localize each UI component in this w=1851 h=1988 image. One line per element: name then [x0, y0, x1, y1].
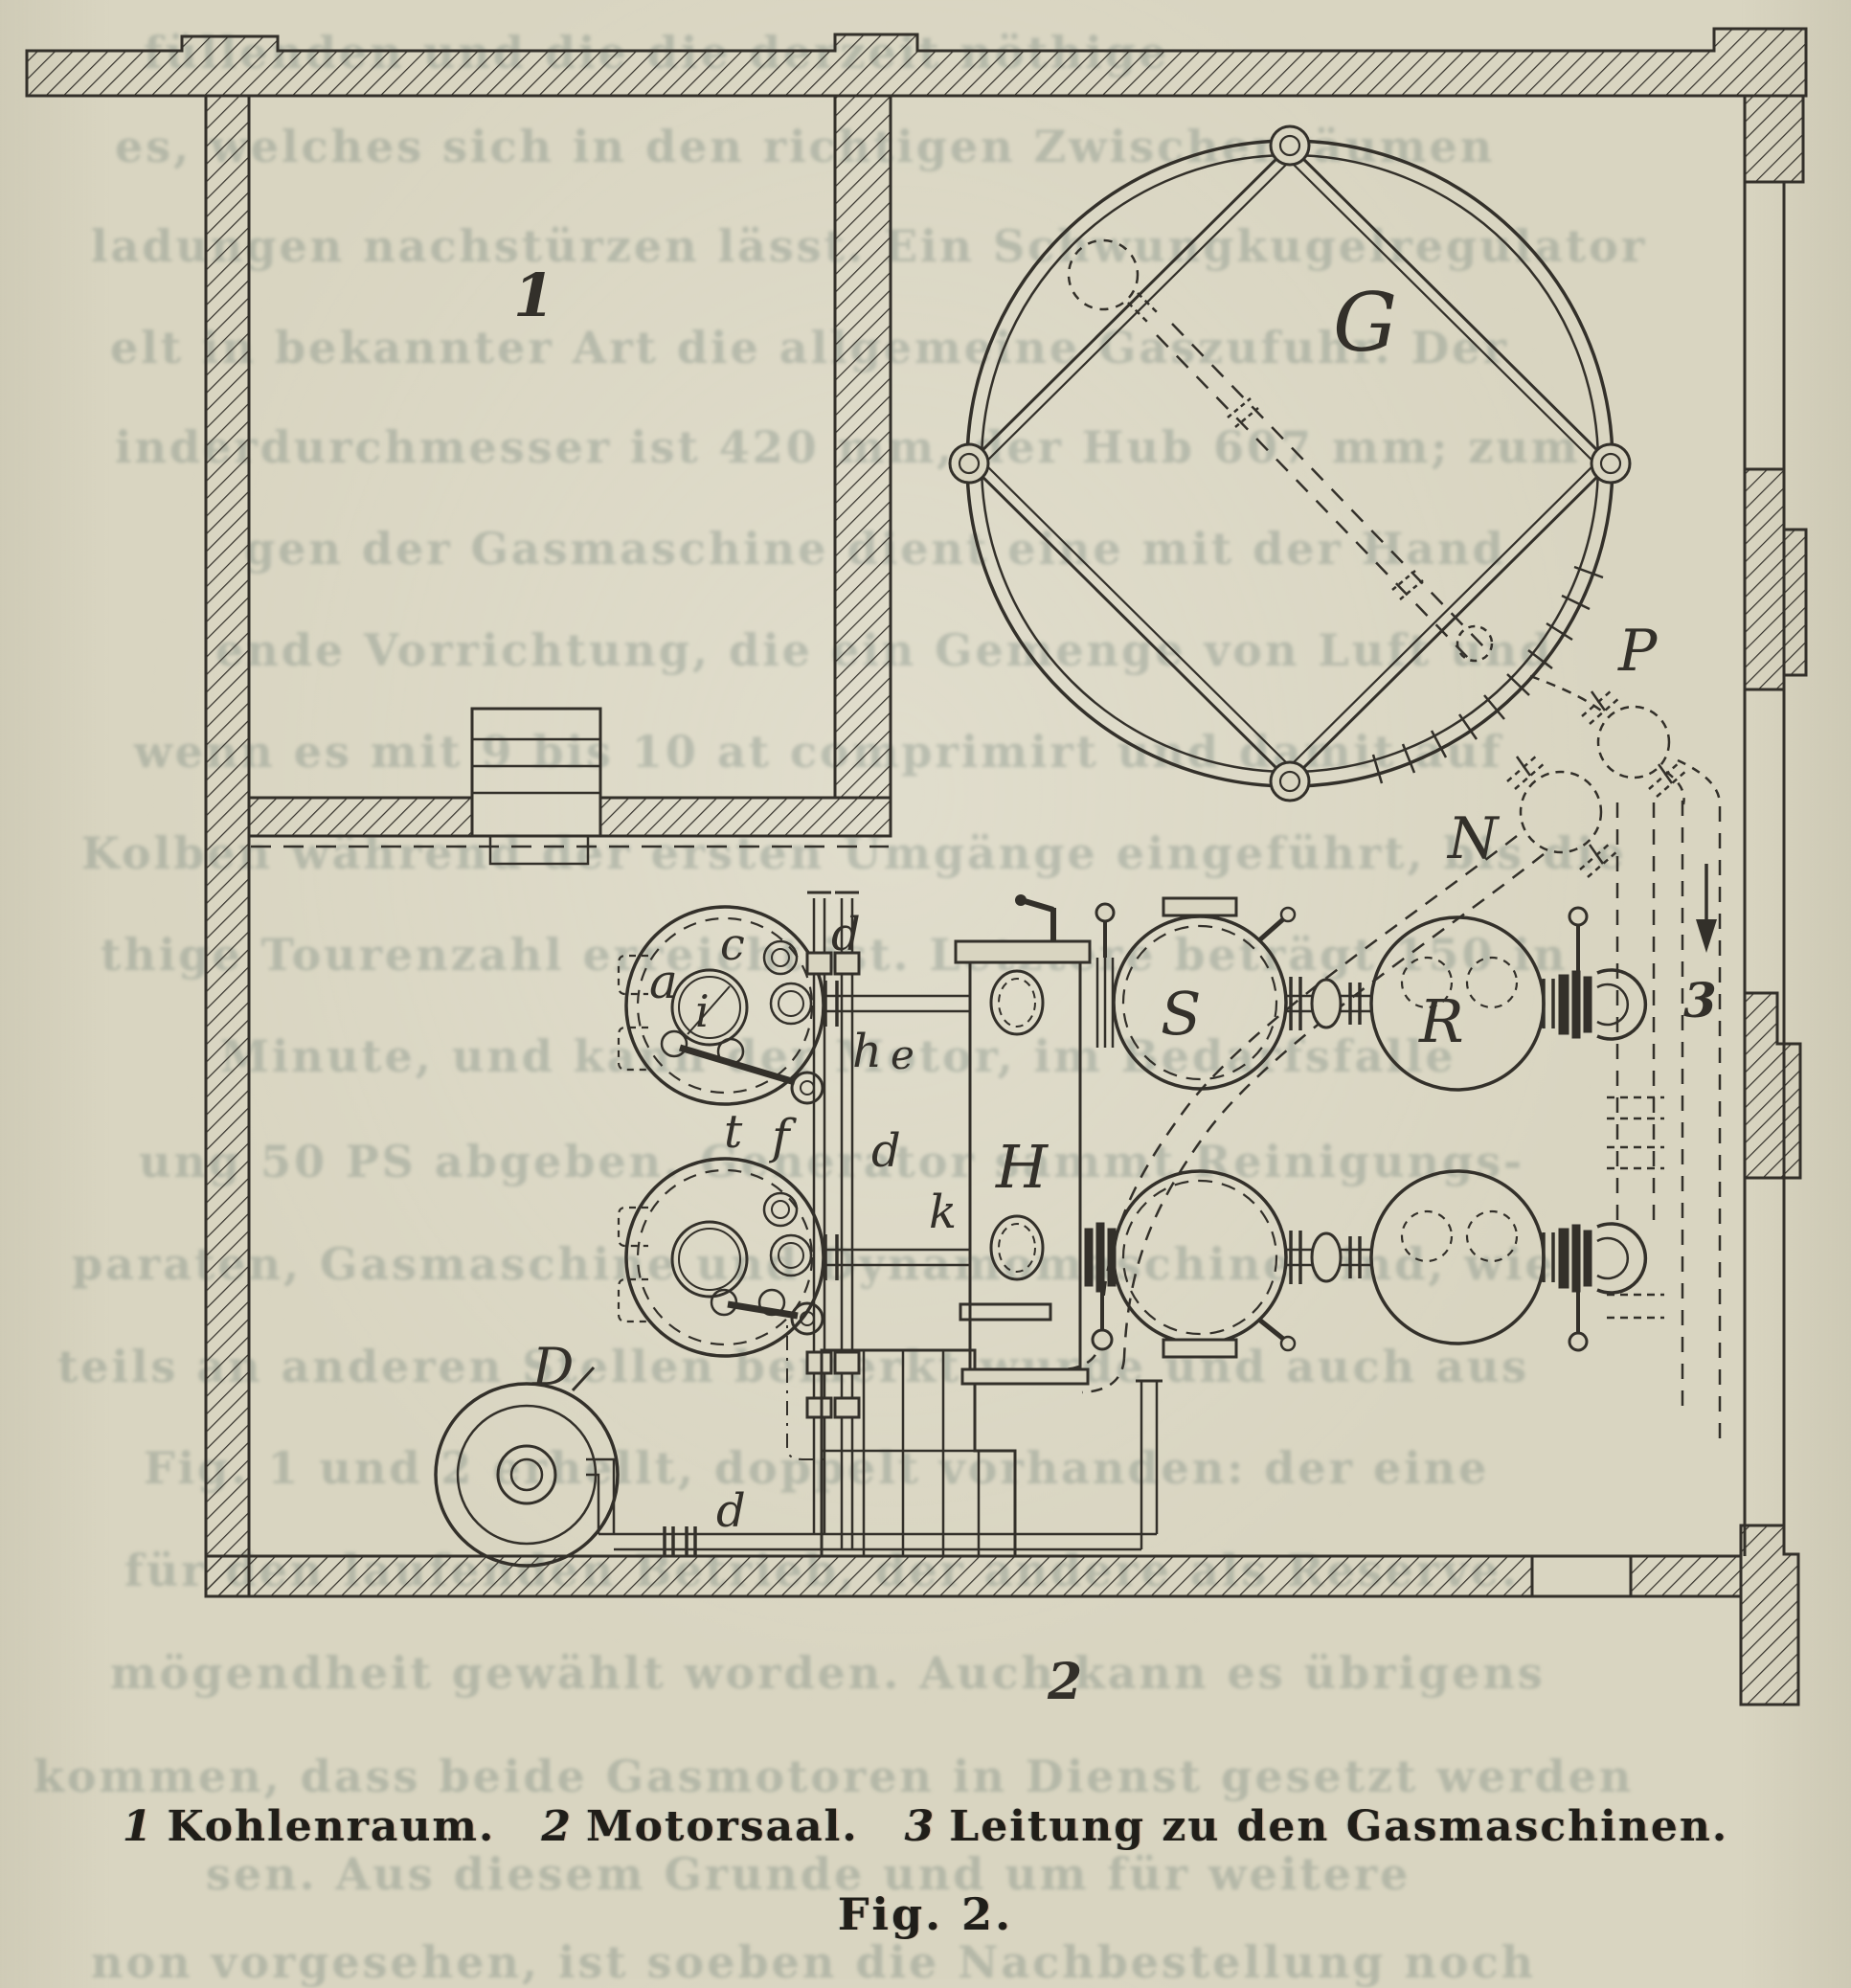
- label-k: k: [929, 1186, 957, 1239]
- left-wall: [206, 96, 249, 1596]
- generator-lower: [619, 1159, 824, 1356]
- label-i: i: [695, 985, 710, 1037]
- tower-scrubber-valve-lower: [960, 1223, 1116, 1349]
- label-c: c: [720, 918, 745, 970]
- right-wall-pier-lower: [1745, 993, 1800, 1178]
- top-wall: [27, 29, 1806, 96]
- label-h: h: [852, 1025, 882, 1078]
- label-coal-room-1: 1: [513, 260, 554, 330]
- partition-wall-horizontal-left: [249, 798, 472, 836]
- purifier-upper-r: [1371, 908, 1645, 1090]
- label-t: t: [724, 1105, 743, 1159]
- scrubber-lower: [1114, 1171, 1295, 1357]
- label-gasholder-g: G: [1333, 276, 1397, 370]
- label-purifier-r: R: [1418, 986, 1464, 1056]
- label-f: f: [768, 1109, 797, 1164]
- scanned-page: { "figure": { "caption_items": [ {"num":…: [0, 0, 1851, 1979]
- caption-item: 2Motorsaal.: [541, 1802, 858, 1851]
- caption-item: 3Leitung zu den Gasmaschinen.: [905, 1802, 1729, 1851]
- purifier-lower: [1371, 1171, 1645, 1350]
- label-valve-p: P: [1617, 618, 1659, 685]
- pipe-s-r-lower: [1286, 1231, 1371, 1284]
- scrubber-upper-s: [1114, 898, 1295, 1089]
- label-valve-n: N: [1446, 805, 1501, 872]
- rim-tick-marks: [1373, 567, 1603, 783]
- label-d-mid: d: [871, 1124, 901, 1178]
- frame-bolt-circles: [950, 126, 1630, 801]
- bottom-wall-left: [206, 1556, 1532, 1596]
- gasholder-g: [950, 126, 1630, 801]
- label-blower-d: D: [531, 1337, 574, 1397]
- label-scrubber-s: S: [1161, 979, 1201, 1049]
- tower-scrubber-flange-upper: [1096, 904, 1114, 1048]
- bottom-wall-right: [1631, 1556, 1741, 1596]
- partition-wall-horizontal-right: [600, 798, 891, 836]
- pipe-d-bottom: [586, 1325, 1163, 1557]
- floor-plan-figure: 1 2 3 G P N S R H a c i h e d t f d k D …: [0, 0, 1851, 1979]
- label-d-top: d: [831, 908, 861, 961]
- caption-item: 1Kohlenraum.: [123, 1802, 496, 1851]
- pipe-s-r-upper: [1286, 977, 1371, 1030]
- dashed-gas-lines: [1063, 760, 1720, 1446]
- label-motor-hall-2: 2: [1047, 1653, 1082, 1711]
- blower-d: [436, 1367, 618, 1566]
- label-cooler-h: H: [995, 1132, 1050, 1202]
- top-right-corner-wall: [1745, 96, 1803, 182]
- figure-caption: 1Kohlenraum.2Motorsaal.3Leitung zu den G…: [0, 1802, 1851, 1851]
- partition-wall-vertical: [835, 96, 891, 798]
- label-e: e: [891, 1031, 914, 1078]
- valve-cluster-p: [1582, 689, 1687, 797]
- flow-arrow-down: [1696, 864, 1717, 953]
- label-gas-line-3: 3: [1683, 972, 1717, 1028]
- label-a: a: [649, 954, 678, 1009]
- valve-u-bend-upper: [1544, 908, 1645, 1039]
- label-d-bottom: d: [716, 1484, 746, 1538]
- valve-u-bend-lower: [1544, 1224, 1645, 1350]
- valve-cluster-n: [1507, 755, 1618, 877]
- coal-chute: [472, 709, 600, 864]
- figure-number: Fig. 2.: [0, 1888, 1851, 1940]
- right-wall-pier-upper: [1745, 469, 1806, 689]
- bottom-right-corner-wall: [1741, 1525, 1798, 1705]
